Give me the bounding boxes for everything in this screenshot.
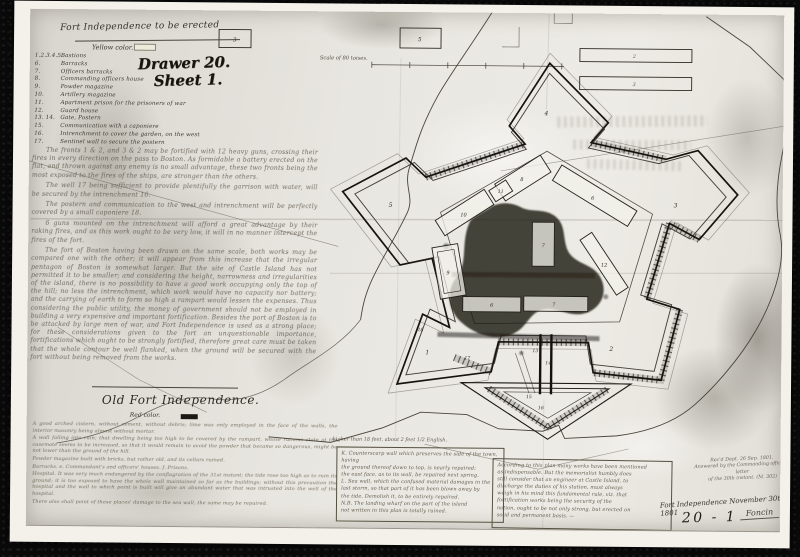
legend-item-label: Commanding officers house: [61, 76, 144, 83]
photo-print: Scale of 80 toises. 3 5 2 3: [10, 1, 795, 549]
old-fort-note-text: Hospital. It was very much endangered by…: [32, 471, 337, 497]
svg-text:3: 3: [674, 202, 678, 209]
legend-item-label: Intrenchment to cover the garden, on the…: [60, 131, 200, 138]
legend-item-number: 12.: [34, 107, 43, 115]
svg-text:18: 18: [418, 327, 424, 333]
svg-text:15: 15: [526, 394, 532, 400]
legend-item-number: 16.: [34, 131, 43, 139]
document-sheet: Scale of 80 toises. 3 5 2 3: [26, 9, 784, 533]
old-fort-note-item: b.A wall falling into ruin; that dwellin…: [26, 435, 338, 458]
legend-item-number: 1.2.3.4.5.: [35, 53, 63, 61]
legend-item-label: Powder magazine: [61, 84, 114, 90]
legend-item-label: Gate, Postern: [60, 115, 101, 121]
svg-text:11: 11: [498, 189, 504, 195]
svg-text:14: 14: [545, 360, 551, 366]
old-fort-note-item: a.A good arched cistern, without cement,…: [26, 421, 338, 437]
yellow-color-key: Yellow color.: [92, 43, 133, 51]
legend-item-label: Apartment prison for the prisoners of wa…: [60, 100, 185, 107]
left-box-caption: higher than 18 feet, about 2 feet 1/2 En…: [333, 436, 448, 443]
svg-text:8: 8: [520, 177, 523, 183]
sheet-archive-number: 20 - 1: [682, 509, 738, 526]
memoir-paragraph: The postern and communication to the wes…: [31, 201, 317, 220]
red-color-key: Red color.: [130, 412, 160, 419]
legend-item-number: 17.: [34, 139, 43, 147]
svg-text:5: 5: [389, 202, 393, 209]
yellow-color-swatch: [134, 44, 156, 51]
legend-item-label: Bastions: [61, 53, 86, 59]
red-color-swatch: [181, 414, 198, 419]
legend-item-label: Barracks: [61, 61, 88, 67]
legend-item-number: 6.: [35, 61, 41, 69]
old-fort-note-text: A wall falling into ruin; that dwelling …: [32, 435, 337, 455]
legend-item-label: Sentinel wall to secure the postern: [60, 139, 165, 146]
svg-text:17: 17: [464, 356, 470, 362]
legend-item-number: 10.: [35, 92, 44, 100]
received-note: Rec'd Dept. 26 Sep. 1801.Answered by the…: [692, 455, 784, 485]
reference-boxes: [219, 9, 693, 91]
old-fort-note-item: g.Hospital. It was very much endangered …: [26, 471, 337, 500]
legend-item-label: Artillery magazine: [61, 92, 116, 98]
note-line: K. Counterscarp wall which preserves the…: [341, 450, 499, 466]
memorialist-note-box: According to this plan many works have b…: [492, 458, 673, 531]
legend-item-number: 11.: [34, 100, 43, 108]
memoir-paragraph: The fort of Boston having been drawn on …: [30, 247, 317, 364]
black-mount-background: Scale of 80 toises. 3 5 2 3: [0, 0, 800, 557]
svg-text:10: 10: [460, 213, 467, 219]
bottom-double-rule: [26, 528, 335, 532]
svg-text:16: 16: [538, 405, 544, 411]
svg-text:1: 1: [425, 349, 429, 356]
scale-label: Scale of 80 toises.: [320, 55, 368, 61]
old-fort-heading: Old Fort Independence.: [102, 393, 260, 407]
legend-item-label: Guard house: [60, 108, 98, 114]
ref-box-label: 2: [632, 54, 636, 60]
memoir-paragraph: The fronts 1 & 2, and 3 & 2 may be forti…: [32, 147, 318, 182]
old-fort-note-text: A good arched cistern, without cement, w…: [33, 421, 338, 435]
legend-item-label: Officers barracks: [61, 69, 113, 75]
legend-item-label: Communication with a caponiere: [60, 123, 158, 130]
memoir-paragraph: The well 17 being sufficient to provide …: [32, 182, 318, 201]
old-fort-notes: a.A good arched cistern, without cement,…: [26, 421, 338, 509]
legend-item-number: 7.: [35, 68, 41, 76]
svg-text:2: 2: [608, 346, 613, 353]
memoir-paragraph: 6 guns mounted on the intrenchment will …: [31, 220, 317, 247]
legend-list: 1.2.3.4.5.Bastions 6.Barracks 7.Officers…: [34, 53, 225, 148]
ravelin: [461, 383, 631, 440]
note-line: not written in this plan is totally ruin…: [341, 507, 499, 515]
legend-item-number: 13. 14.: [34, 115, 55, 123]
legend-item-number: 8.: [35, 76, 41, 84]
svg-text:4: 4: [543, 110, 548, 117]
memoir-paragraphs: The fronts 1 & 2, and 3 & 2 may be forti…: [30, 147, 318, 367]
legend-item-number: 9.: [35, 84, 41, 92]
old-fort-note-text: Barracks. e. Commandant's and officers' …: [32, 463, 188, 470]
note-line: solid and permanent basis. —: [497, 512, 667, 522]
ref-box-label: 3: [633, 82, 636, 88]
ref-box-label: 5: [418, 37, 422, 43]
repairs-note-box: K. Counterscarp wall which preserves the…: [336, 446, 505, 522]
svg-text:13: 13: [532, 348, 538, 354]
old-fort-note-text: There also shall point of these places' …: [32, 498, 268, 506]
svg-text:12: 12: [601, 263, 607, 269]
old-fort-note-item: h.There also shall point of these places…: [26, 498, 337, 507]
legend-item-number: 15.: [34, 123, 43, 131]
old-fort-note-text: Powder magazine built with bricks, but r…: [32, 456, 225, 464]
